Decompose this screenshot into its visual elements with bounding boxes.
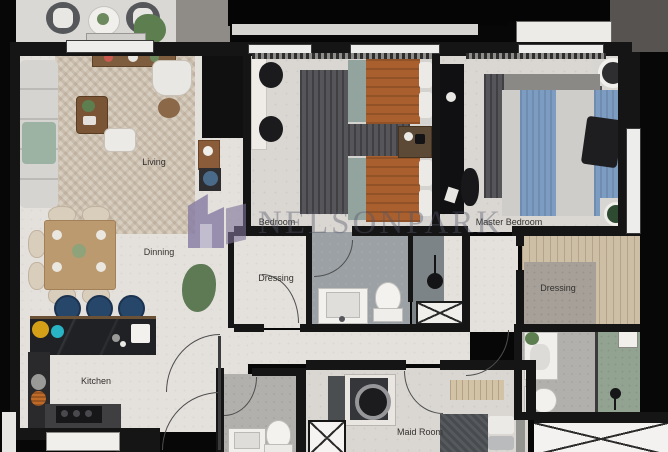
wall [228, 232, 234, 328]
desk-chair [259, 116, 283, 142]
twin-bed-blanket [366, 58, 420, 124]
island-dish [120, 341, 126, 347]
duct-shaft [308, 420, 346, 452]
wall [408, 232, 413, 302]
washing-machine-drum [355, 384, 391, 420]
wc-toilet-tank [264, 444, 293, 452]
counter-pot [31, 374, 46, 390]
master-bed-runner [520, 90, 556, 216]
room-label-kitchen: Kitchen [81, 376, 111, 386]
upper-unit-shadow [228, 0, 508, 26]
coffee-table-plant [82, 100, 95, 112]
mbath-plant [525, 332, 539, 345]
curtain-master [466, 53, 606, 59]
entry-lamp [203, 146, 213, 156]
dressing-2-rug [524, 262, 596, 324]
floor-plan: Living Dinning Kitchen Bedroom Master Be… [0, 0, 668, 452]
wall [514, 330, 522, 420]
balcony-table-plant [97, 13, 109, 25]
window-master-side [626, 128, 641, 234]
watermark-text: NELSONPARK [258, 205, 503, 242]
stair-shaft [534, 420, 668, 452]
wc-sink-basin [234, 432, 260, 449]
bath-faucet [339, 316, 345, 322]
curtain-bedroom [252, 53, 432, 59]
island-dish [112, 334, 120, 342]
wall [306, 360, 406, 370]
room-label-dressing-1: Dressing [258, 273, 294, 283]
wall [300, 324, 470, 332]
desk-chair [259, 62, 283, 88]
wall [432, 44, 440, 232]
upper-unit-shadow-right [506, 0, 610, 22]
service-panel [2, 412, 16, 452]
mshower-arm [614, 398, 616, 410]
wall [514, 412, 668, 420]
exterior-wall [176, 0, 230, 42]
vanity-item [446, 92, 456, 102]
twin-bed-pillow [419, 160, 432, 186]
entry-wardrobe [202, 44, 248, 138]
room-label-living: Living [142, 157, 166, 167]
bath-sink-basin [326, 292, 360, 318]
twin-bed-pillow [419, 62, 432, 88]
shower-head [427, 273, 443, 289]
dining-plate [52, 262, 62, 272]
stove-burner [61, 410, 68, 417]
counter-pot-orange [31, 391, 46, 406]
maid-bed-pillow [488, 436, 514, 450]
nightstand-lamp [404, 132, 413, 141]
maid-bed-blanket [440, 414, 488, 452]
vanity-chair [461, 168, 479, 206]
kitchen-door [46, 432, 120, 451]
wall [526, 368, 536, 420]
shower-mat [416, 301, 464, 325]
mshower-shelf [618, 330, 638, 348]
shower-arm [434, 255, 436, 275]
wall [234, 324, 264, 332]
master-bed-headboard [504, 74, 600, 91]
room-label-dressing-2: Dressing [540, 283, 576, 293]
room-label-dinning: Dinning [144, 247, 175, 257]
wall [296, 368, 306, 452]
dining-plate [52, 230, 62, 240]
balcony-chair-cushion [53, 8, 73, 28]
wall [516, 232, 524, 246]
watermark-logo-flag [226, 204, 246, 245]
nightstand-clock [415, 134, 425, 144]
room-label-maid-room: Maid Room [397, 427, 443, 437]
armchair [152, 60, 192, 96]
sofa-throw [22, 122, 56, 164]
cooktop-pan [32, 321, 49, 338]
window-balcony-door [66, 40, 154, 53]
wall [306, 232, 312, 328]
stove-burner [85, 410, 92, 417]
watermark-logo-notch [200, 224, 212, 248]
mshower-glass [595, 326, 598, 412]
coffee-table-tray [83, 116, 96, 125]
wall [516, 270, 524, 332]
upper-unit-ledge [232, 24, 478, 35]
dining-plate [96, 262, 106, 272]
floor-corridor [248, 330, 470, 364]
mbath-toilet-bowl [533, 388, 557, 413]
maid-bench [450, 380, 504, 400]
wall [512, 226, 640, 236]
entry-bowl [203, 171, 218, 186]
toilet-tank [373, 308, 403, 322]
maid-bed-pillow [488, 416, 514, 434]
wall [462, 232, 470, 332]
dining-plate [96, 230, 106, 240]
wall [514, 324, 640, 332]
wall [252, 368, 304, 376]
wall [10, 42, 20, 440]
twin-bed-foot [348, 60, 368, 122]
stove-burner [73, 410, 80, 417]
entrance-door-leaf [218, 336, 221, 450]
upper-balcony-ledge [516, 21, 612, 44]
wall [116, 428, 160, 452]
cooktop-pot [51, 325, 64, 338]
dining-centerpiece [72, 244, 86, 258]
kitchen-sink [131, 324, 150, 343]
twin-bed-pillow [419, 92, 432, 118]
lounge-chair [104, 128, 136, 152]
master-bed-pillow [581, 116, 623, 169]
side-table [158, 98, 180, 118]
